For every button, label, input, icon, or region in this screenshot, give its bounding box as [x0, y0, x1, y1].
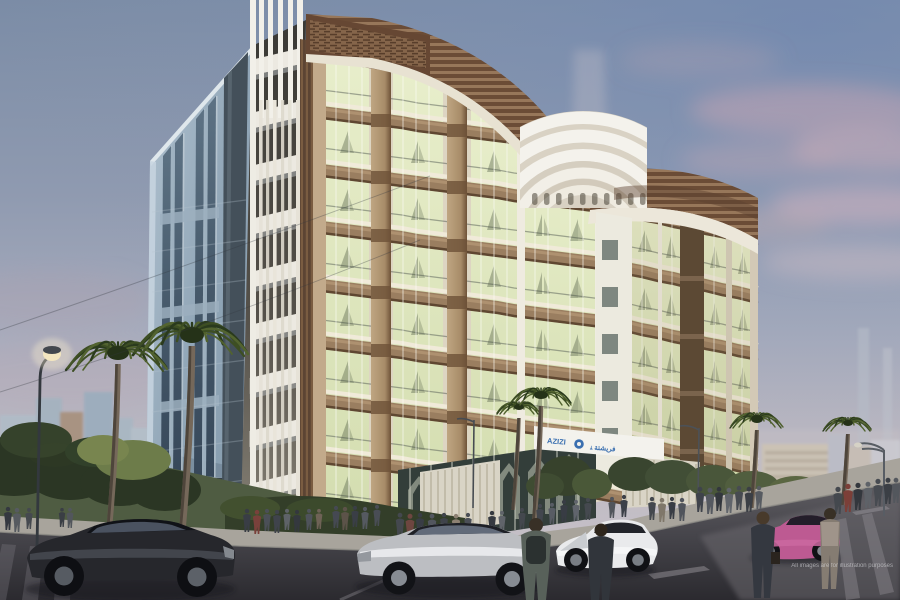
- svg-text:AZIZI: AZIZI: [547, 436, 566, 446]
- svg-text:All images are for illustratio: All images are for illustration purposes: [791, 563, 893, 569]
